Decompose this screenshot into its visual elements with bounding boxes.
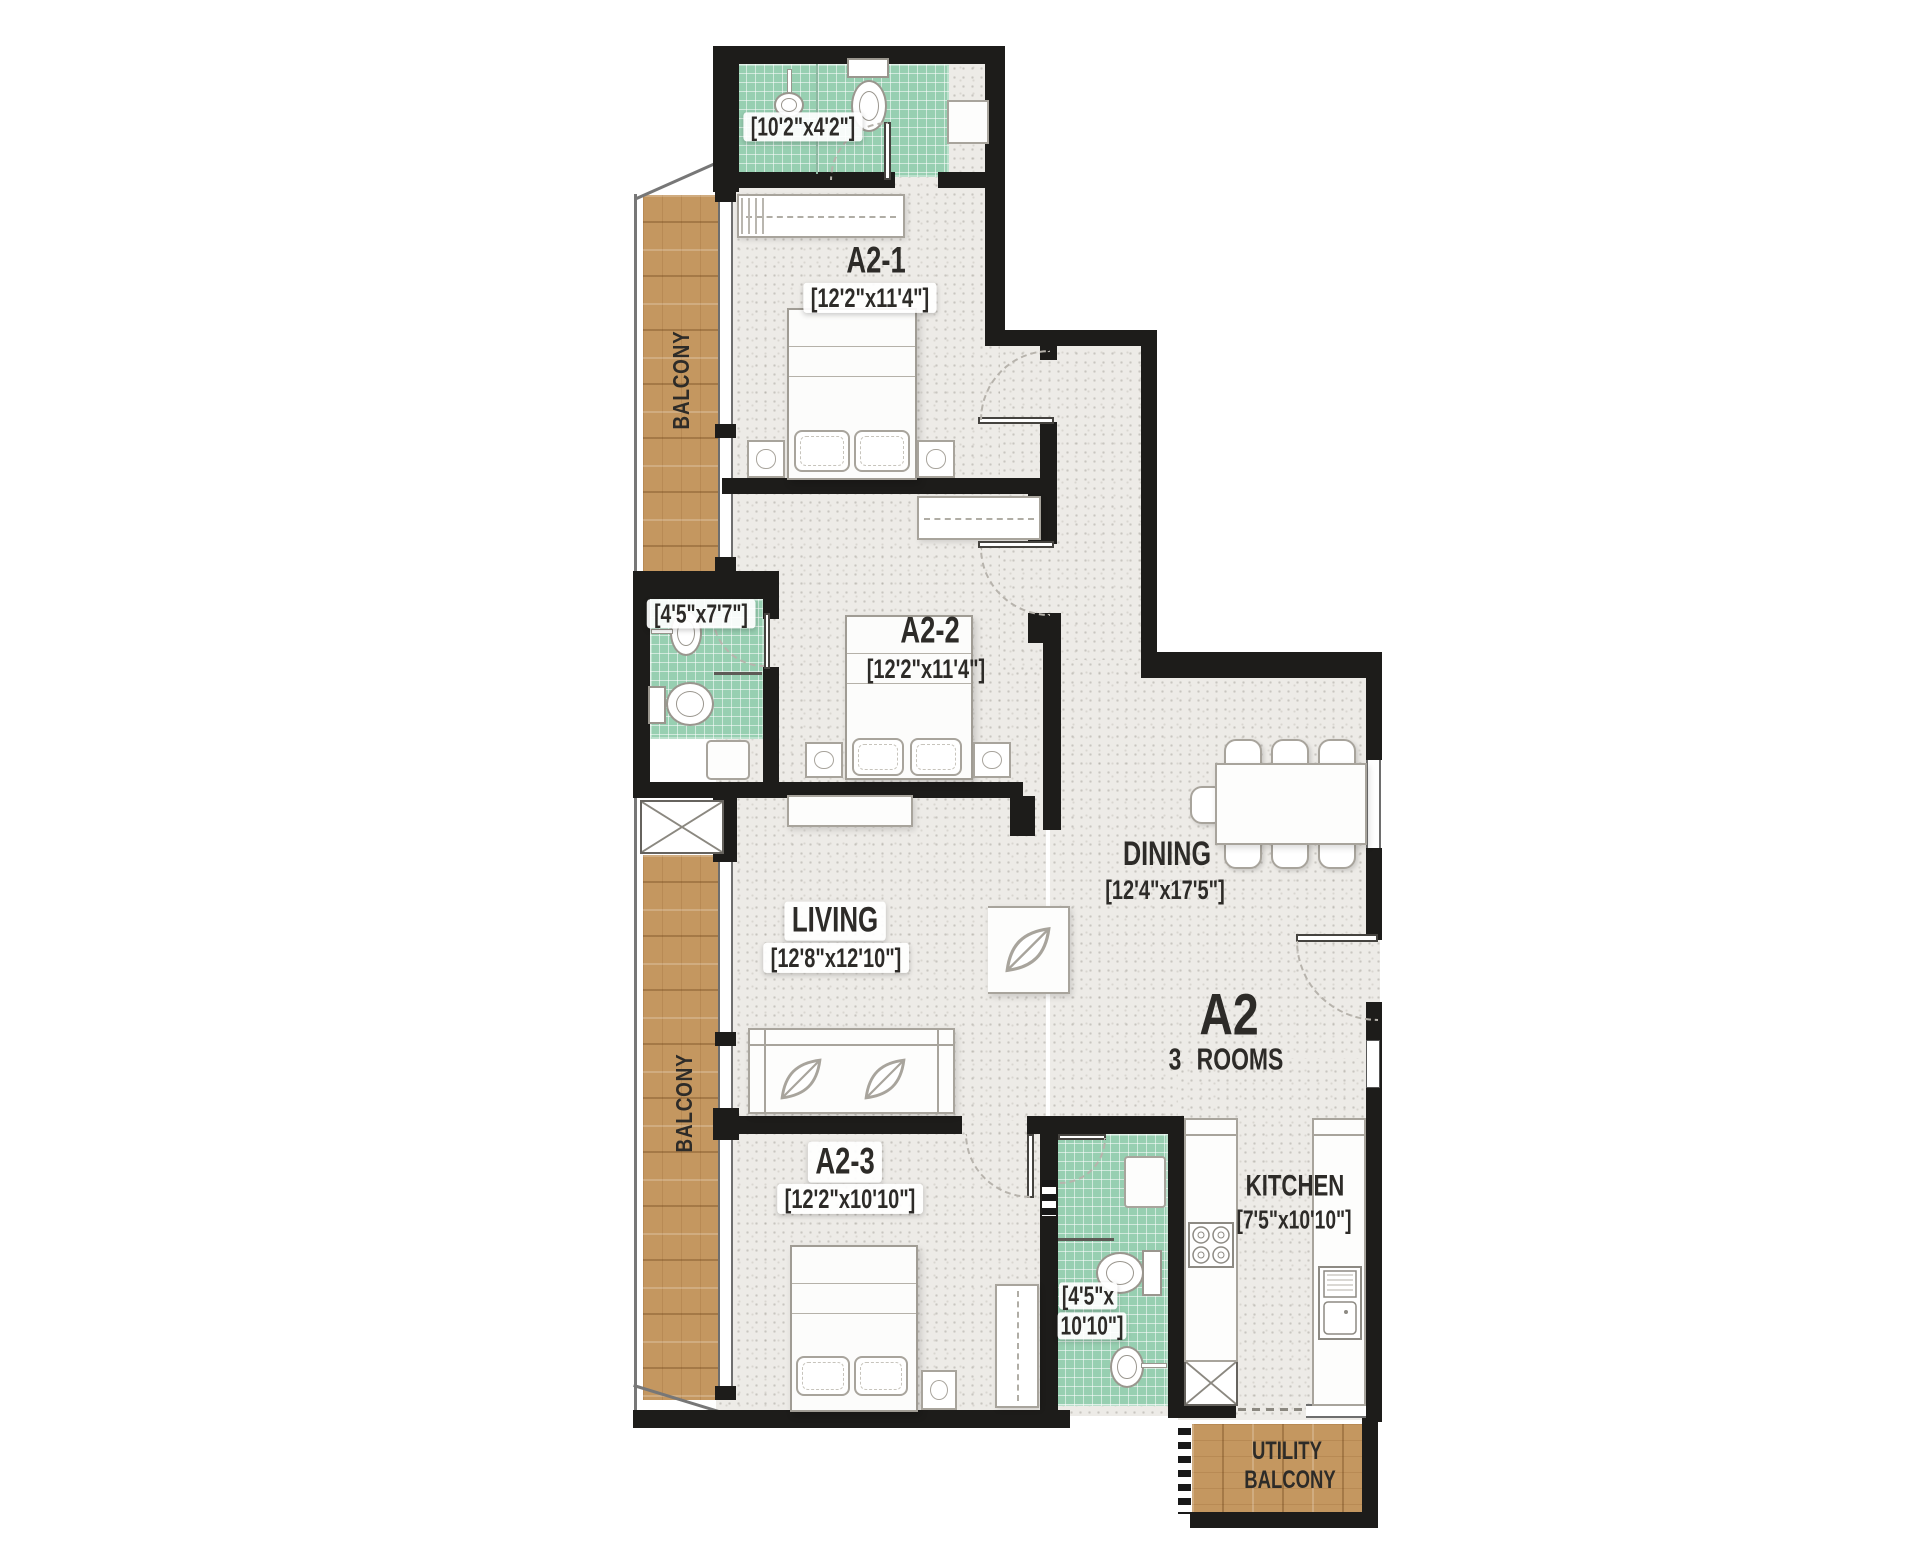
washbasin-bottom-bath bbox=[1110, 1346, 1144, 1388]
bedroom1-name-label: A2-1 bbox=[846, 242, 905, 281]
toilet-tank bbox=[1142, 1250, 1162, 1296]
bedroom2-dims-label: [12'2"x11'4"] bbox=[867, 655, 985, 683]
bedroom3-dims-label: [12'2"x10'10"] bbox=[777, 1184, 922, 1214]
wall-segment bbox=[722, 478, 1028, 494]
balcony-top-label: BALCONY bbox=[669, 330, 693, 429]
wall-segment bbox=[1168, 1116, 1184, 1418]
living-dims-label: [12'8"x12'10"] bbox=[763, 943, 908, 973]
window-mullion bbox=[715, 1386, 736, 1400]
basin-faucet bbox=[652, 630, 672, 633]
balcony-mid-label: BALCONY bbox=[672, 1053, 696, 1152]
utility-balcony-label-line2: BALCONY bbox=[1244, 1467, 1335, 1493]
sofa-arm bbox=[937, 1030, 953, 1112]
armchair bbox=[988, 906, 1070, 994]
wall-segment bbox=[635, 571, 779, 599]
wall-segment bbox=[1040, 1116, 1058, 1428]
dining-table bbox=[1215, 763, 1367, 845]
bedroom1-dims-label: [12'2"x11'4"] bbox=[803, 283, 936, 313]
bedroom3-name-label: A2-3 bbox=[808, 1142, 882, 1183]
wall-segment bbox=[1010, 796, 1035, 836]
wall-segment bbox=[1366, 848, 1382, 940]
wall-segment bbox=[1027, 1116, 1184, 1134]
wall-segment bbox=[713, 46, 739, 192]
outer-wall-line-left bbox=[634, 194, 637, 1410]
shower-partition bbox=[1058, 1238, 1114, 1241]
window-utility bbox=[1306, 1404, 1366, 1418]
window-mullion bbox=[715, 424, 736, 438]
kitchen-counter-right bbox=[1312, 1118, 1366, 1406]
wall-segment bbox=[985, 330, 1157, 346]
dining-chair bbox=[1190, 786, 1218, 824]
wall-segment bbox=[1141, 652, 1382, 678]
dining-name-label: DINING bbox=[1123, 837, 1211, 873]
living-name-label: LIVING bbox=[784, 902, 885, 941]
bath-top-closet bbox=[947, 100, 989, 144]
pillow bbox=[794, 430, 850, 472]
bath-bottom-dims-line2: 10'10"] bbox=[1058, 1312, 1127, 1339]
wardrobe-hanger-section bbox=[741, 198, 765, 234]
wall-segment bbox=[985, 172, 1005, 346]
kitchen-name-label: KITCHEN bbox=[1246, 1170, 1345, 1202]
nightstand bbox=[747, 440, 785, 478]
nightstand bbox=[917, 440, 955, 478]
toilet-bowl bbox=[666, 682, 714, 726]
window-dining-right bbox=[1366, 758, 1381, 850]
wall-segment bbox=[633, 1410, 1070, 1428]
floor-plan: [10'2"x4'2"] A2-1 [12'2"x11'4"] A2-2 [12… bbox=[0, 0, 1916, 1568]
utility-balcony-label-line1: UTILITY bbox=[1252, 1438, 1322, 1464]
wall-segment bbox=[1040, 422, 1057, 482]
wall-segment bbox=[1043, 613, 1061, 830]
unit-rooms-label: 3 ROOMS bbox=[1169, 1044, 1284, 1077]
shower-partition bbox=[714, 672, 762, 675]
wall-segment bbox=[1190, 1512, 1378, 1528]
wardrobe-bedroom3 bbox=[995, 1284, 1039, 1408]
wardrobe-bedroom2 bbox=[917, 496, 1041, 540]
wall-segment bbox=[763, 571, 779, 619]
bath-mid-dims-label: [4'5"x7'7"] bbox=[647, 599, 756, 628]
pillow bbox=[854, 1356, 908, 1396]
utility-door-dashes bbox=[1238, 1408, 1306, 1411]
window-mullion bbox=[715, 1032, 736, 1046]
wall-segment bbox=[1141, 330, 1157, 660]
sofa-back bbox=[750, 1030, 953, 1046]
pillow bbox=[852, 738, 904, 776]
kitchen-shelf bbox=[1312, 1118, 1366, 1136]
kitchen-shelf bbox=[1184, 1118, 1238, 1136]
dining-chair bbox=[1318, 841, 1356, 869]
bath-top-dims-label: [10'2"x4'2"] bbox=[743, 112, 862, 141]
kitchen-dims-label: [7'5"x10'10"] bbox=[1236, 1206, 1351, 1233]
bath-bottom-dims-line1: [4'5"x bbox=[1059, 1282, 1117, 1309]
console-table bbox=[787, 795, 913, 827]
dining-chair bbox=[1271, 841, 1309, 869]
bedroom2-name-label: A2-2 bbox=[900, 612, 959, 651]
nightstand bbox=[805, 742, 843, 778]
pillow bbox=[854, 430, 910, 472]
pillow bbox=[910, 738, 962, 776]
vent-grille bbox=[1042, 1180, 1056, 1216]
wall-segment bbox=[1184, 1404, 1236, 1418]
pillow bbox=[796, 1356, 850, 1396]
dining-chair bbox=[1224, 841, 1262, 869]
nightstand bbox=[921, 1370, 957, 1410]
wall-segment bbox=[763, 667, 779, 798]
basin-faucet bbox=[1142, 1364, 1166, 1367]
wall-segment bbox=[722, 1116, 962, 1134]
wall-segment bbox=[1366, 652, 1382, 760]
shower-tray bbox=[1124, 1156, 1166, 1208]
duct-notch bbox=[1366, 1040, 1380, 1088]
unit-name-label: A2 bbox=[1199, 986, 1258, 1047]
shaft-left bbox=[640, 800, 724, 854]
sofa bbox=[748, 1028, 955, 1114]
toilet-tank bbox=[847, 58, 889, 78]
door-leaf-bath-mid bbox=[764, 613, 770, 669]
toilet-tank bbox=[648, 686, 666, 724]
sofa-arm bbox=[750, 1030, 766, 1112]
window-balcony-top bbox=[718, 194, 733, 573]
stove bbox=[1188, 1222, 1234, 1268]
shaft-kitchen bbox=[1184, 1360, 1238, 1406]
door-leaf-bedroom2 bbox=[978, 541, 1054, 548]
dining-dims-label: [12'4"x17'5"] bbox=[1105, 876, 1225, 904]
utility-hatch-strip bbox=[1178, 1428, 1191, 1514]
shower-tray bbox=[706, 740, 750, 780]
nightstand bbox=[973, 742, 1011, 778]
kitchen-sink bbox=[1318, 1266, 1362, 1340]
